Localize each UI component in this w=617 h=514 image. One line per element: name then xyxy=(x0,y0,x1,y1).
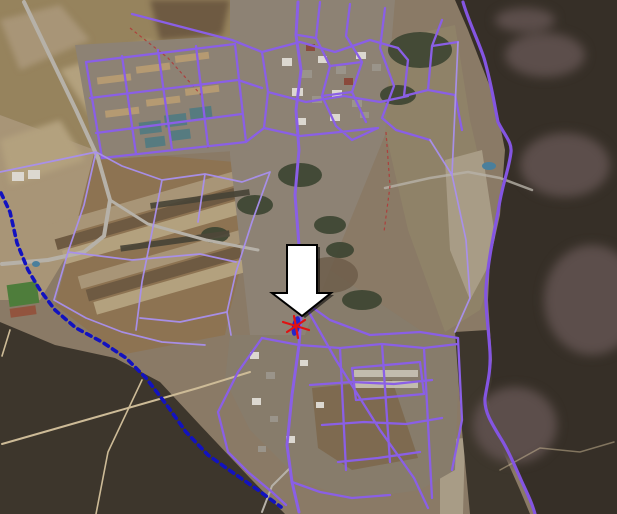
aerial-map xyxy=(0,0,617,514)
map-viewport[interactable] xyxy=(0,0,617,514)
pond xyxy=(482,162,496,170)
small-pond xyxy=(32,261,40,267)
sports-field xyxy=(7,281,40,307)
